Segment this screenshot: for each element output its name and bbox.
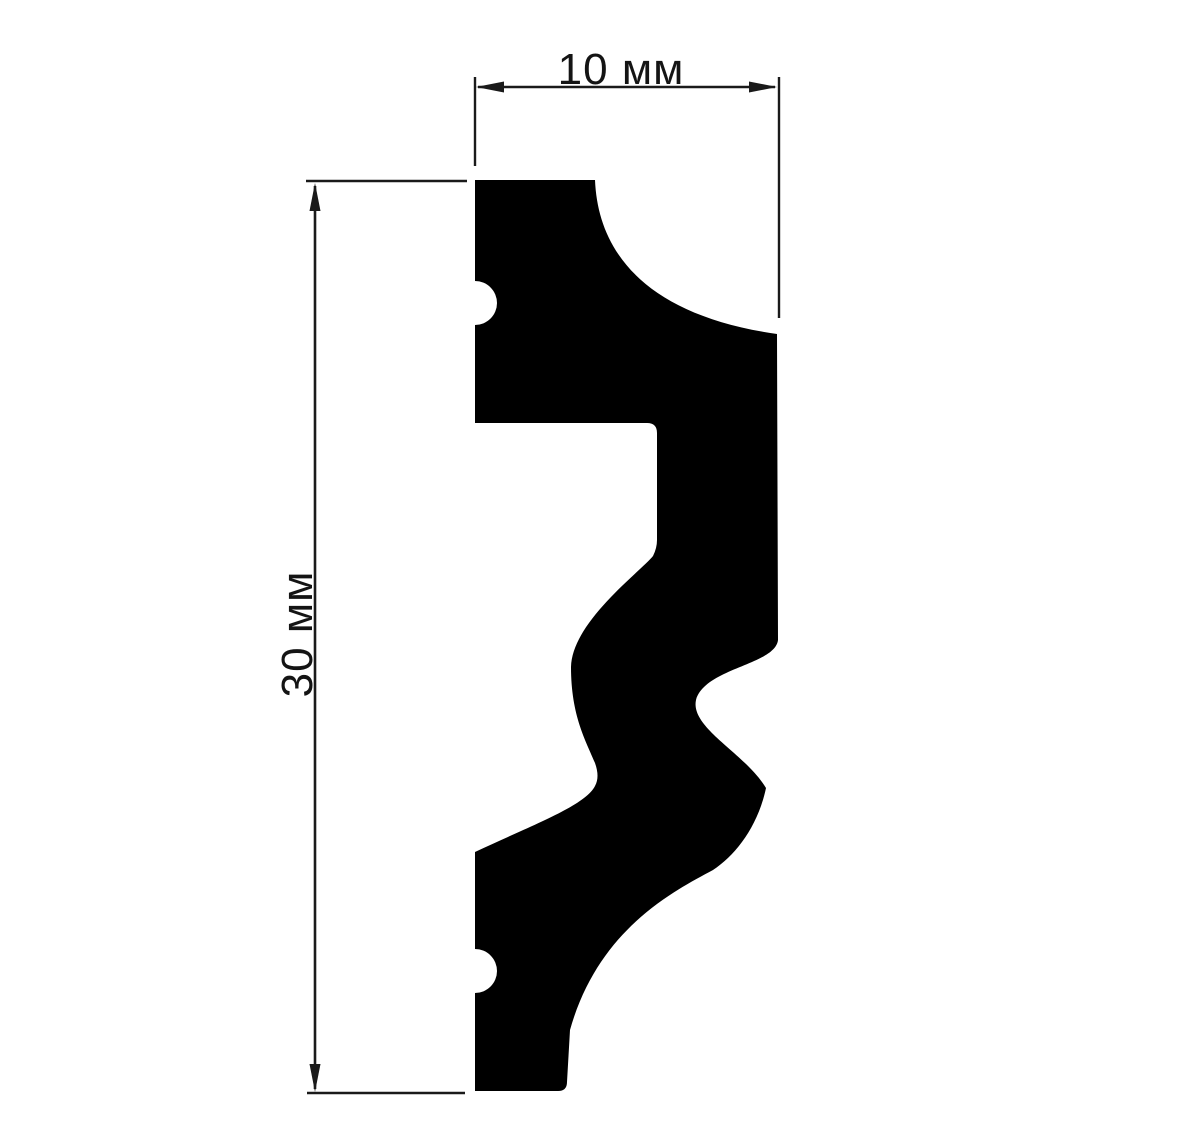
- molding-profile-diagram: 10 мм 30 мм: [0, 0, 1200, 1145]
- width-dim-arrow-left-icon: [476, 82, 504, 93]
- height-dim-arrow-up-icon: [310, 183, 321, 211]
- height-dim-label: 30 мм: [273, 571, 322, 698]
- molding-profile-shape: [475, 180, 778, 1091]
- height-dim-arrow-down-icon: [310, 1064, 321, 1092]
- height-dimension: 30 мм: [273, 181, 467, 1093]
- width-dim-label: 10 мм: [558, 45, 685, 94]
- width-dim-arrow-right-icon: [749, 82, 777, 93]
- molding-profile: [475, 180, 778, 1091]
- diagram-canvas: 10 мм 30 мм: [0, 0, 1200, 1145]
